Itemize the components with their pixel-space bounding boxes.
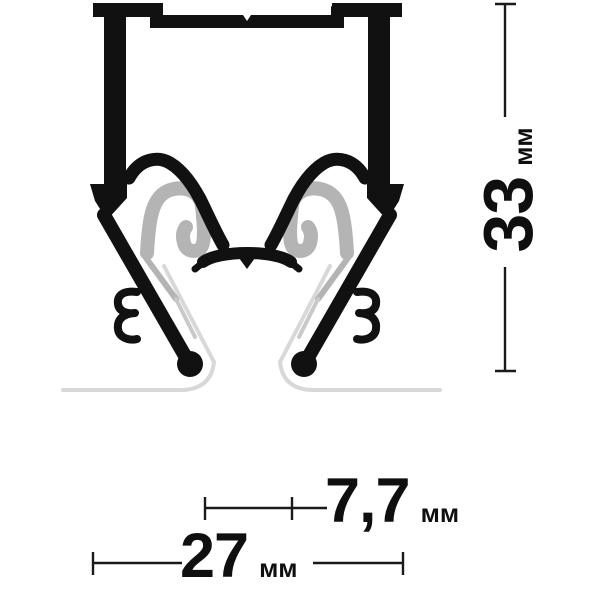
- profile-walls-and-arms: [104, 15, 390, 361]
- profile-drawing-canvas: 33 мм 7,7 мм 27 мм: [0, 0, 600, 600]
- dimension-value-width: 27: [180, 525, 248, 588]
- dimension-line-gap-77: [205, 497, 327, 520]
- dimension-label-width: 27 мм: [180, 525, 298, 588]
- profile-cross-section-drawing: [0, 0, 600, 600]
- dimension-unit-height: мм: [510, 127, 536, 165]
- dimension-unit-width: мм: [259, 555, 297, 581]
- dimension-value-height: 33: [473, 177, 543, 253]
- dimension-unit-gap: мм: [421, 500, 459, 526]
- profile-body: [90, 3, 404, 377]
- dimension-value-gap: 7,7: [325, 470, 410, 533]
- dimension-label-gap: 7,7 мм: [325, 470, 459, 533]
- dimension-label-height: 33 мм: [473, 105, 537, 275]
